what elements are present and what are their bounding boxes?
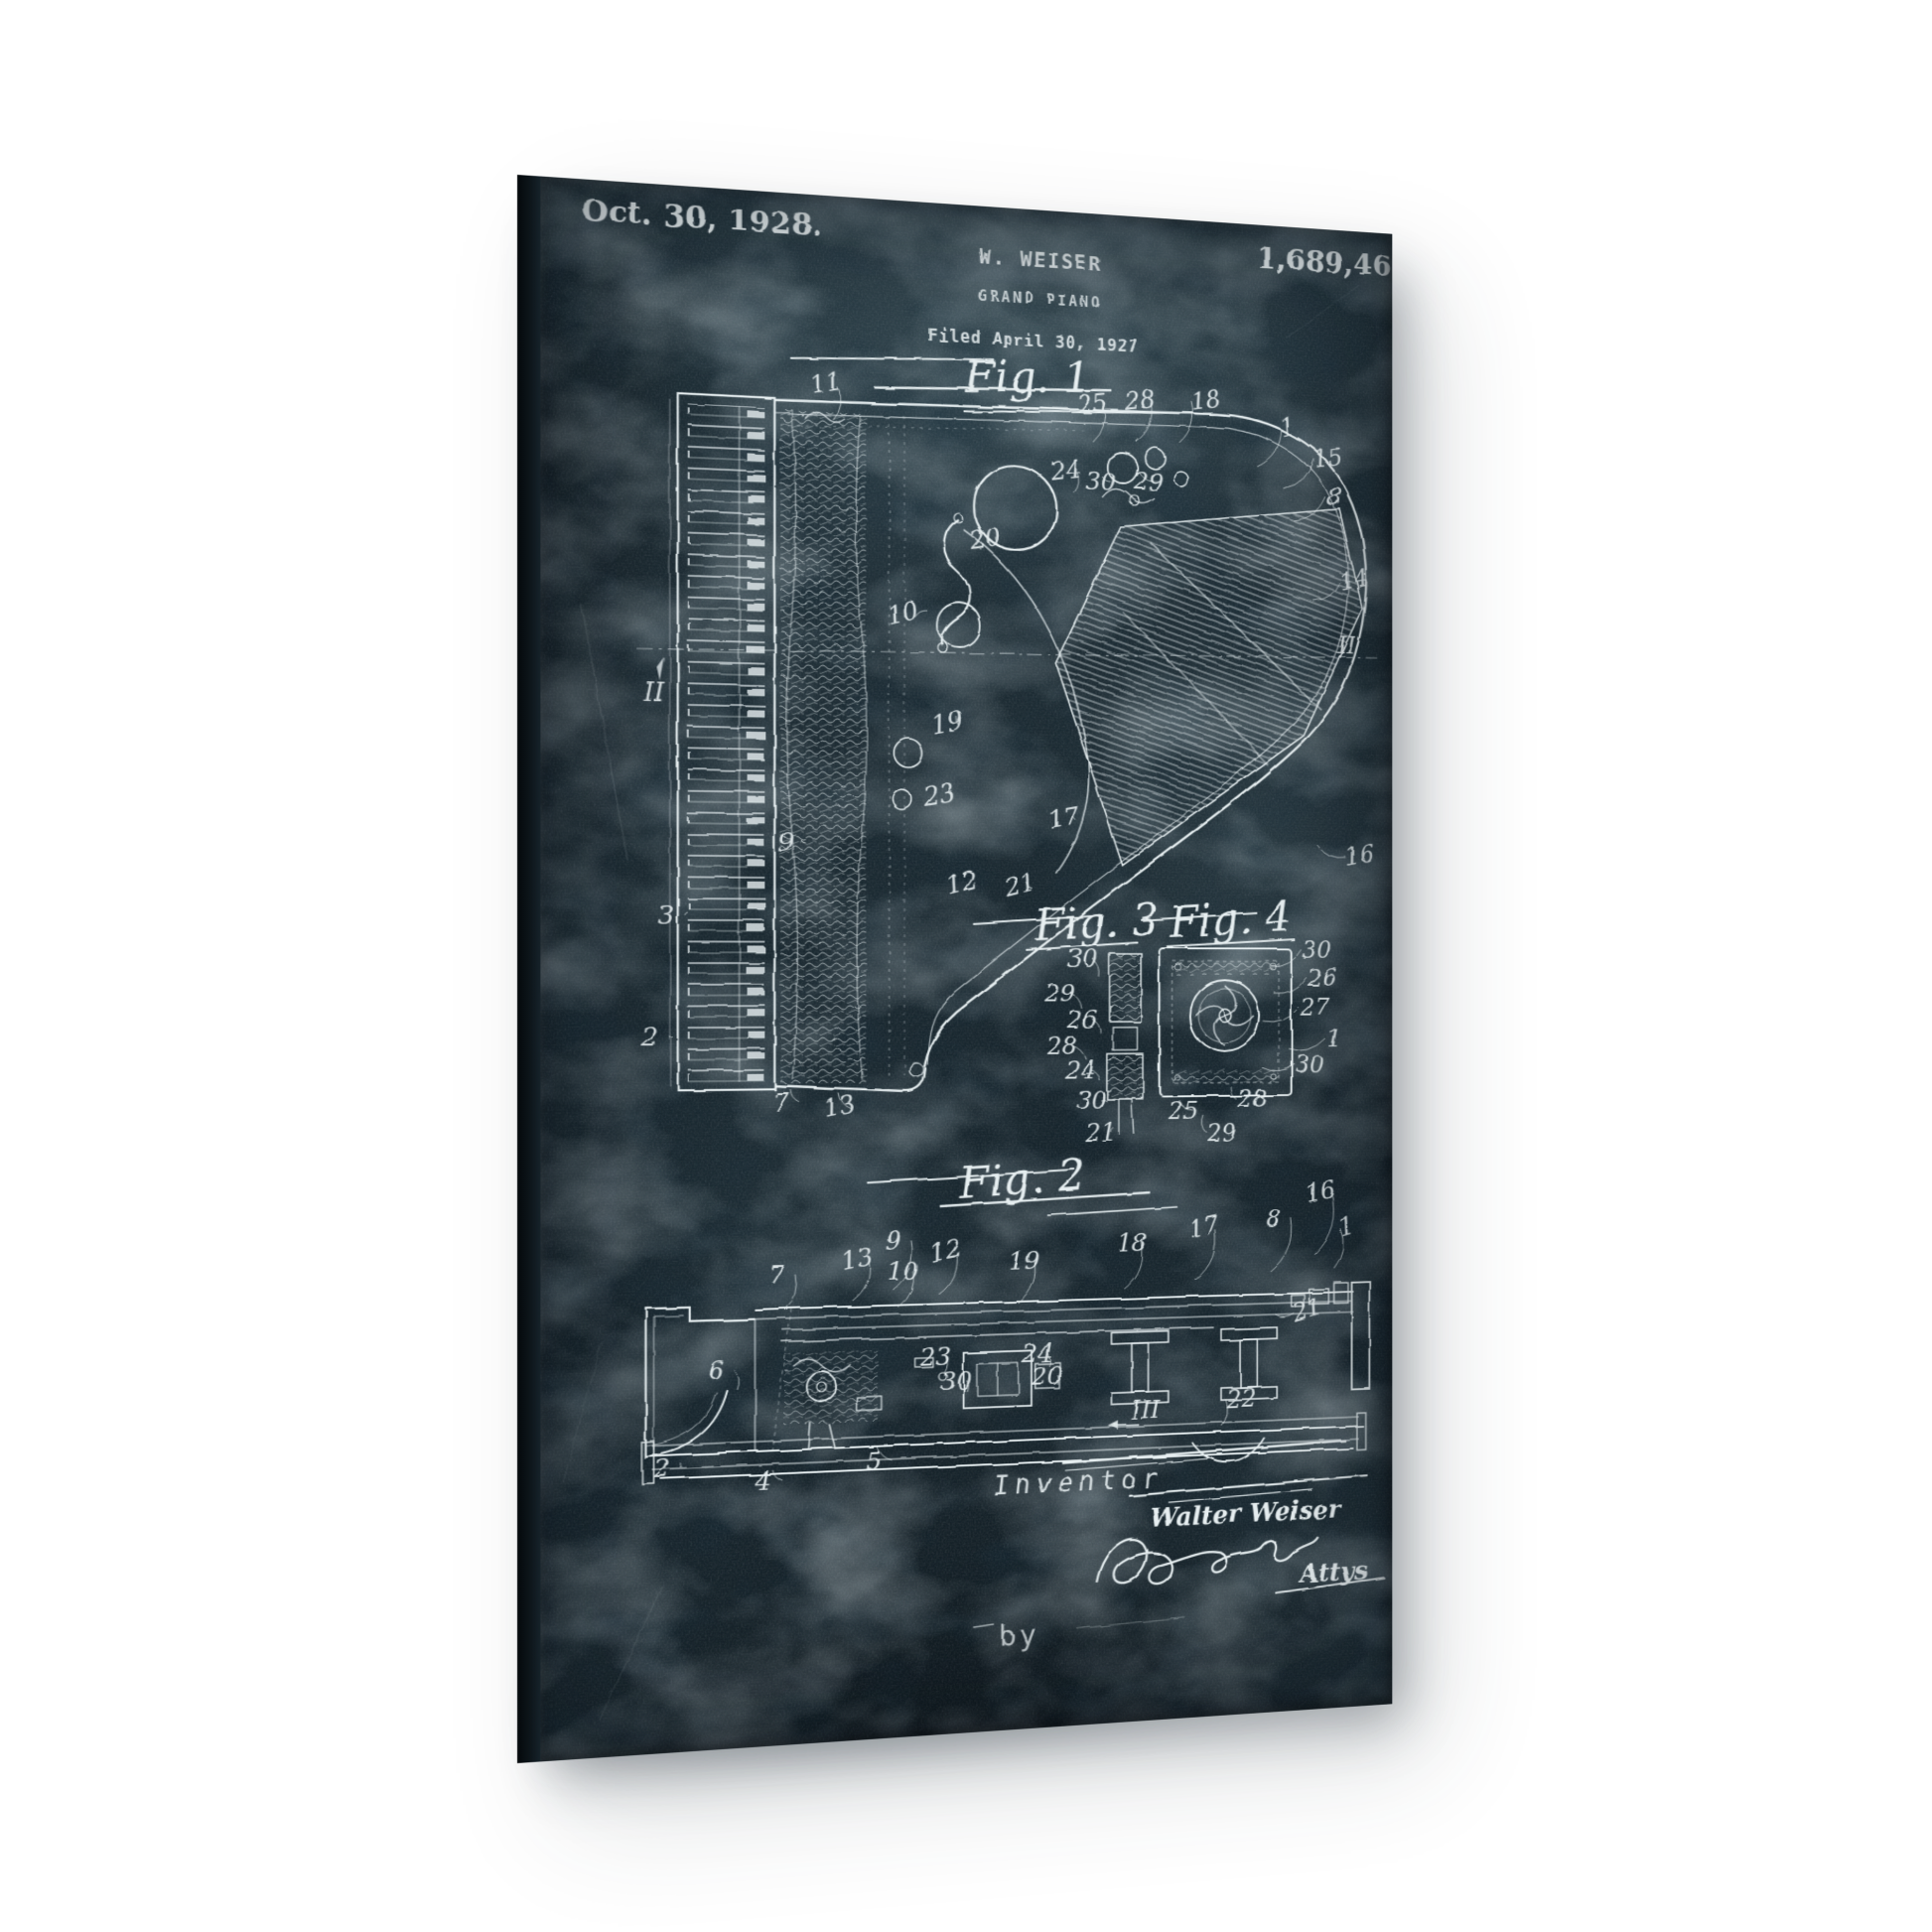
canvas-front: Oct. 30, 1928. 1,689,467 W. WEISER GRAND… xyxy=(540,177,1392,1762)
patent-artwork: Oct. 30, 1928. 1,689,467 W. WEISER GRAND… xyxy=(540,177,1392,1762)
texture-grain xyxy=(540,177,1392,1762)
canvas-side-spine xyxy=(517,175,540,1763)
product-photo: Oct. 30, 1928. 1,689,467 W. WEISER GRAND… xyxy=(0,0,1932,1932)
canvas-print: Oct. 30, 1928. 1,689,467 W. WEISER GRAND… xyxy=(517,175,1392,1763)
